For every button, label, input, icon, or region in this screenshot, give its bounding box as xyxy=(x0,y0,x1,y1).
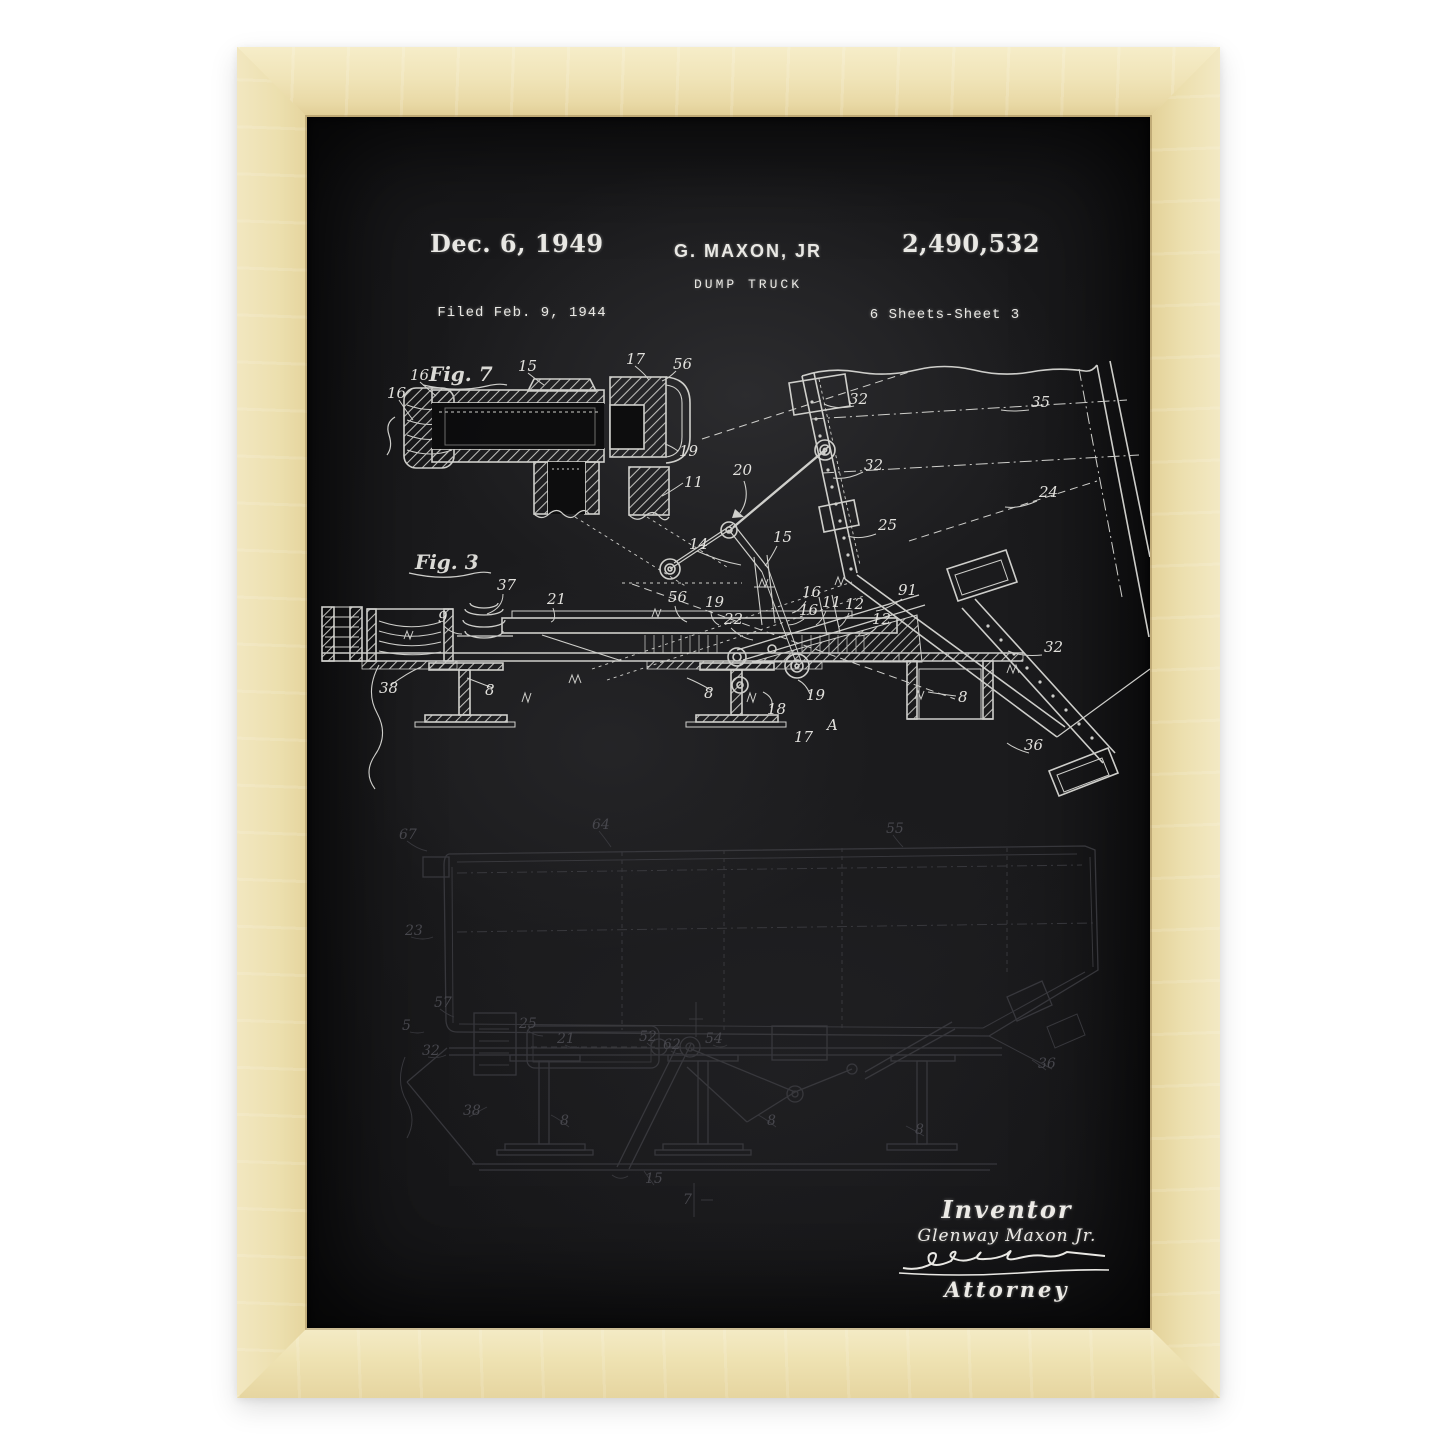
part-label: 15 xyxy=(773,528,792,546)
barrel-top-wall xyxy=(432,390,604,403)
part-label: 8 xyxy=(958,688,968,706)
part-label: 8 xyxy=(704,684,714,702)
body-top-break xyxy=(802,365,1097,376)
bed-dash-horizontals xyxy=(457,865,1095,932)
wooden-frame: Dec. 6, 1949 G. MAXON, JR 2,490,532 DUMP… xyxy=(237,47,1220,1398)
i-beam-b2 xyxy=(655,1055,751,1155)
part-label: 24 xyxy=(1038,483,1058,501)
break-squiggle xyxy=(387,417,395,455)
part-label: 37 xyxy=(497,576,517,594)
part-label: 36 xyxy=(1038,1056,1056,1072)
part-label: 18 xyxy=(767,700,786,718)
leaf-spring-b xyxy=(474,1013,516,1075)
part-label: 17 xyxy=(794,728,814,746)
part-label: 20 xyxy=(732,461,753,479)
part-label: 54 xyxy=(705,1031,723,1047)
body-right-edge xyxy=(1097,361,1150,637)
hoist-linkage-b xyxy=(612,1037,857,1178)
leader-lines xyxy=(407,831,1046,1185)
part-label: 38 xyxy=(379,679,398,697)
part-label: 11 xyxy=(822,593,841,611)
right-bracket xyxy=(907,661,993,719)
mid-leg-left-wall xyxy=(534,462,548,514)
part-label: 12 xyxy=(845,595,864,613)
frame-right-rail xyxy=(1150,47,1220,1398)
inventor-script-label: Inventor xyxy=(882,1195,1132,1224)
part-label: 19 xyxy=(806,686,826,704)
figure-7-cylinder-section: Fig. 7 xyxy=(387,362,690,520)
head-bore xyxy=(610,405,644,449)
bed-outline xyxy=(444,846,1098,1036)
part-label: 32 xyxy=(849,390,868,408)
signature-block: Inventor Glenway Maxon Jr. Attorney xyxy=(882,1195,1132,1302)
part-label: 25 xyxy=(877,516,897,534)
part-label: 64 xyxy=(592,817,610,833)
bed-dash-verticals xyxy=(622,848,1007,1032)
rivets xyxy=(810,400,852,570)
part-label: 91 xyxy=(898,581,917,599)
part-label: 21 xyxy=(546,590,566,608)
product-photo: Dec. 6, 1949 G. MAXON, JR 2,490,532 DUMP… xyxy=(0,0,1445,1445)
barrel-bore xyxy=(432,403,604,449)
part-label: 16 xyxy=(387,384,407,402)
bed-rear-plate-a xyxy=(1007,981,1052,1021)
part-label: 8 xyxy=(485,681,495,699)
chassis-break-wave xyxy=(400,1057,412,1138)
part-label: 8 xyxy=(767,1113,776,1129)
i-beam-left xyxy=(415,663,515,727)
frame-bottom-rail xyxy=(237,1328,1220,1398)
part-label: 7 xyxy=(683,1192,692,1208)
bed-inner-lines xyxy=(452,854,1093,1028)
part-label: 36 xyxy=(1024,736,1044,754)
part-label: 32 xyxy=(1044,638,1063,656)
hydraulic-cylinder-b xyxy=(527,1026,681,1068)
part-label: 62 xyxy=(663,1037,681,1053)
mid-leg-cavity xyxy=(548,462,585,514)
part-label: 15 xyxy=(518,357,537,375)
part-label: 9 xyxy=(438,608,448,626)
label-20-arrow xyxy=(740,481,746,513)
part-label: 35 xyxy=(1031,393,1050,411)
part-label: 22 xyxy=(723,610,743,628)
figure-caption: Fig. 7 xyxy=(428,362,493,386)
figure-bottom-faint-bed xyxy=(400,831,1098,1217)
attorney-signature-scrawl xyxy=(897,1246,1117,1276)
platform-gusset xyxy=(542,635,622,661)
frame-top-rail xyxy=(237,47,1220,117)
part-label: 56 xyxy=(673,355,693,373)
part-label: 55 xyxy=(886,821,904,837)
patent-poster: Dec. 6, 1949 G. MAXON, JR 2,490,532 DUMP… xyxy=(307,117,1150,1328)
part-label: 21 xyxy=(556,1031,575,1047)
part-label: 32 xyxy=(422,1043,440,1059)
patent-drawing: Fig. 7 xyxy=(307,117,1150,1328)
part-label: 32 xyxy=(864,456,883,474)
frame-left-rail xyxy=(237,47,307,1398)
part-label: 52 xyxy=(639,1029,657,1045)
part-label: 56 xyxy=(668,588,688,606)
part-label: 25 xyxy=(518,1016,537,1032)
part-label: 15 xyxy=(645,1171,663,1187)
chassis-rails xyxy=(449,1048,1002,1170)
lower-rivet-strip xyxy=(947,550,1118,796)
attorney-script-label: Attorney xyxy=(882,1277,1132,1302)
body-notch-lower xyxy=(819,500,859,532)
inventor-name: Glenway Maxon Jr. xyxy=(882,1226,1132,1246)
mid-leg-right-wall xyxy=(585,462,599,514)
part-label: 16 xyxy=(802,583,822,601)
figure-caption: Fig. 3 xyxy=(414,550,479,574)
part-label: 11 xyxy=(684,473,703,491)
part-label: 19 xyxy=(679,442,699,460)
rear-brace-b xyxy=(865,1022,955,1079)
part-label: A xyxy=(825,716,838,734)
barrel-bottom-wall xyxy=(432,449,604,462)
part-label: 19 xyxy=(705,593,725,611)
part-label: 12 xyxy=(872,610,891,628)
part-label: 8 xyxy=(560,1113,569,1129)
strip-plate-upper-inner xyxy=(955,560,1008,595)
part-label: 23 xyxy=(404,923,423,939)
right-leg xyxy=(629,467,669,515)
part-label: 14 xyxy=(689,535,708,553)
tilted-dump-body xyxy=(789,361,1150,737)
part-label: 38 xyxy=(463,1103,481,1119)
part-label: 17 xyxy=(626,350,646,368)
part-label: 8 xyxy=(915,1122,924,1138)
part-label: 16 xyxy=(799,601,819,619)
part-label: 57 xyxy=(434,995,452,1011)
part-label: 16 xyxy=(410,366,430,384)
part-label: 67 xyxy=(399,827,417,843)
part-label: 5 xyxy=(402,1018,411,1034)
bed-rear-plate-b xyxy=(1047,1014,1085,1048)
i-beam-b1 xyxy=(497,1055,593,1155)
